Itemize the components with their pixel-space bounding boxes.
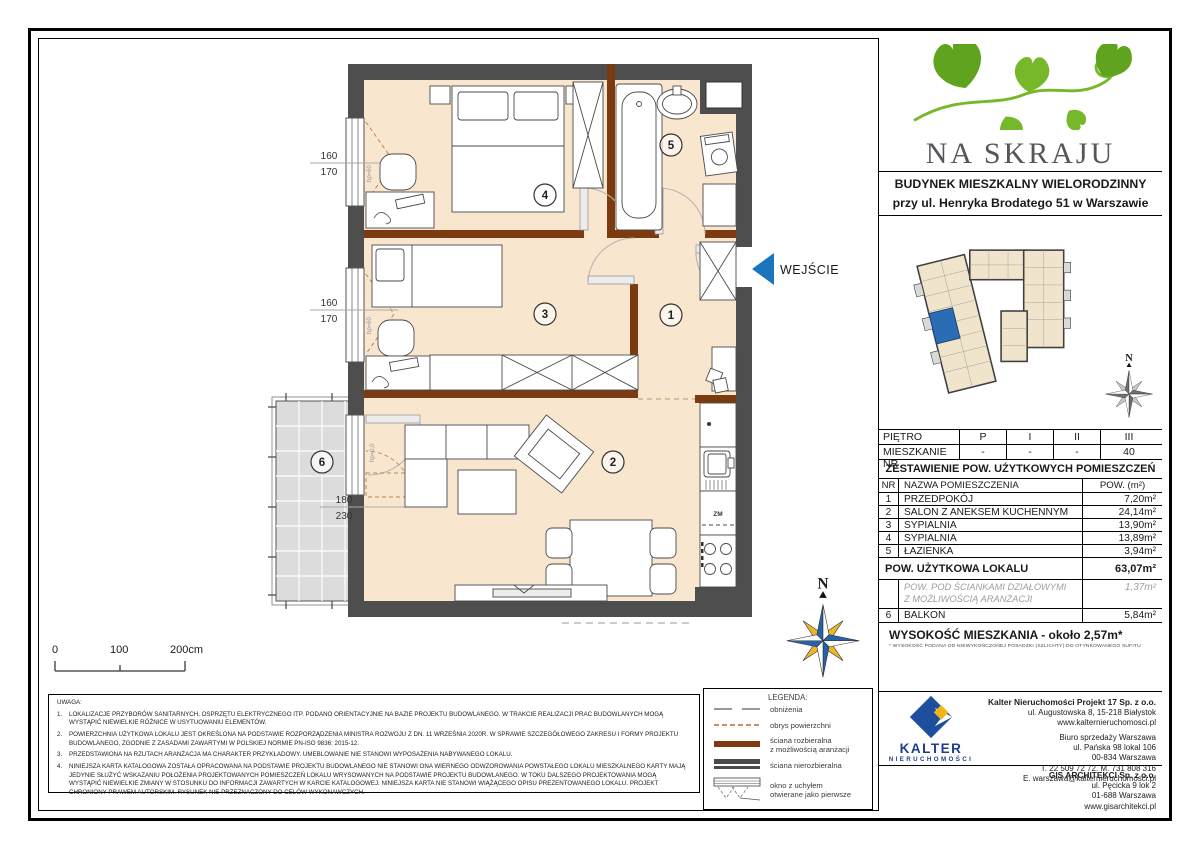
project-name: NA SKRAJU — [879, 137, 1162, 171]
dishwasher-label: ZM — [713, 511, 722, 518]
company-website: www.kalternieruchomosci.pl — [983, 718, 1156, 728]
total-value: 63,07m² — [1082, 558, 1162, 579]
row-nr — [879, 580, 899, 608]
floor-3: III — [1100, 430, 1157, 444]
sill-label: hp=60 — [367, 164, 373, 182]
room-number-5: 5 — [668, 140, 675, 152]
room-number-3: 3 — [542, 309, 548, 321]
company-address: ul. Augustowska 8, 15-218 Białystok — [983, 708, 1156, 718]
partition-label: POW. POD ŚCIANKAMI DZIAŁOWYMI Z MOŻLIWOŚ… — [899, 580, 1082, 608]
architect-city: 01-688 Warszawa — [879, 791, 1156, 801]
developer-contact: Kalter Nieruchomości Projekt 17 Sp. z o.… — [983, 692, 1162, 765]
unit-p: - — [959, 445, 1006, 459]
dim-window2-width: 160 — [321, 298, 338, 309]
legend-label: otwierane jako pierwsze — [770, 790, 851, 799]
legend-item-window: okno z uchyłem otwierane jako pierwsze — [712, 776, 868, 804]
developer-section: KALTER nieruchomości Kalter Nieruchomośc… — [879, 691, 1162, 765]
row-nr: 6 — [879, 609, 899, 622]
kalter-diamond-icon — [908, 694, 954, 740]
floor-2: II — [1053, 430, 1100, 444]
office-line: Biuro sprzedaży Warszawa — [983, 733, 1156, 743]
legend-item-fixed-wall: ściana nierozbieralna — [712, 758, 868, 772]
row-name: SALON Z ANEKSEM KUCHENNYM — [899, 506, 1082, 518]
legend-item-removable-wall: ściana rozbieralna z możliwością aranżac… — [712, 736, 868, 754]
note-item: 3.PRZEDSTAWIONA NA RZUTACH ARANŻACJA MA … — [57, 751, 689, 760]
note-text: NINIEJSZA KARTA KATALOGOWA ZOSTAŁA OPRAC… — [69, 763, 689, 798]
site-plan-section: N — [879, 216, 1162, 430]
architect-name: GIS ARCHITEKCI Sp. z o.o. — [879, 770, 1156, 781]
dim-window2-height: 170 — [321, 314, 338, 325]
legend-box: LEGENDA: obniżenia obrys powierzchni ści… — [703, 688, 873, 810]
compass-rose-small: N — [1100, 351, 1158, 431]
row-nr: 3 — [879, 519, 899, 531]
balcony-row: 6 BALKON 5,84m² — [879, 609, 1162, 623]
legend-item-outline: obrys powierzchni — [712, 720, 868, 732]
office-line: ul. Pańska 98 lokal 106 — [983, 743, 1156, 753]
scale-0: 0 — [52, 644, 58, 656]
row-area: 13,90m² — [1082, 519, 1162, 531]
row-area: 3,94m² — [1082, 545, 1162, 557]
floor-plan: hp=60 hp=60 hp=0,0 160 170 160 170 — [262, 42, 882, 632]
row-name: PRZEDPOKÓJ — [899, 493, 1082, 505]
legend-label: obniżenia — [770, 705, 803, 714]
dim-balcony-door-width: 180 — [336, 495, 353, 506]
row-nr: 4 — [879, 532, 899, 544]
room-number-2: 2 — [610, 457, 616, 469]
total-area-row: POW. UŻYTKOWA LOKALU 63,07m² — [879, 558, 1162, 580]
row-area: 24,14m² — [1082, 506, 1162, 518]
outline-symbol — [712, 720, 764, 732]
building-line1: BUDYNEK MIESZKALNY WIELORODZINNY — [879, 175, 1162, 193]
kalter-logo: KALTER nieruchomości — [879, 692, 983, 765]
company-name: Kalter Nieruchomości Projekt 17 Sp. z o.… — [983, 697, 1156, 708]
entrance-marker: WEJŚCIE — [752, 253, 839, 285]
height-footnote: * WYSOKOŚĆ PODANA OD NIEWYKOŃCZONEJ POSA… — [889, 644, 1162, 649]
kitchen-furniture: ZM — [700, 403, 736, 587]
compass-rose-main: N — [780, 574, 866, 698]
note-number: 2. — [57, 731, 69, 748]
ivy-logo-icon — [901, 44, 1141, 130]
legend-label: ściana rozbieralna — [770, 736, 832, 745]
building-line2: przy ul. Henryka Brodatego 51 w Warszawi… — [879, 194, 1162, 212]
table-row: 3 SYPIALNIA 13,90m² — [879, 519, 1162, 532]
row-name: SYPIALNIA — [899, 519, 1082, 531]
floor-p: P — [959, 430, 1006, 444]
note-number: 4. — [57, 763, 69, 798]
row-name: BALKON — [899, 609, 1082, 622]
niche — [706, 82, 742, 108]
unit-1: - — [1006, 445, 1053, 459]
architect-website: www.gisarchitekci.pl — [879, 802, 1156, 812]
note-item: 1.LOKALIZACJE PRZYBORÓW SANITARNYCH, OSP… — [57, 711, 689, 728]
col-area: POW. (m²) — [1082, 479, 1162, 492]
partition-value: 1,37m² — [1082, 580, 1162, 608]
partition-line1: POW. POD ŚCIANKAMI DZIAŁOWYMI — [904, 582, 1066, 592]
notes-title: UWAGA: — [57, 699, 689, 708]
scale-200: 200cm — [170, 644, 203, 656]
note-number: 3. — [57, 751, 69, 760]
note-text: POWIERZCHNIA UŻYTKOWA LOKALU JEST OKREŚL… — [69, 731, 689, 748]
floor-label: PIĘTRO — [879, 430, 959, 444]
partition-area-row: POW. POD ŚCIANKAMI DZIAŁOWYMI Z MOŻLIWOŚ… — [879, 580, 1162, 609]
fixed-wall-symbol — [712, 758, 764, 772]
north-label: N — [1125, 353, 1133, 364]
row-name: SYPIALNIA — [899, 532, 1082, 544]
building-description: BUDYNEK MIESZKALNY WIELORODZINNY przy ul… — [879, 172, 1162, 216]
row-area: 5,84m² — [1082, 609, 1162, 622]
architect-section: GIS ARCHITEKCI Sp. z o.o. ul. Pęcicka 9 … — [879, 765, 1162, 811]
legend-item-lowering: obniżenia — [712, 704, 868, 716]
title-block: NA SKRAJU BUDYNEK MIESZKALNY WIELORODZIN… — [878, 38, 1162, 811]
north-label: N — [817, 575, 828, 592]
table-row: 1 PRZEDPOKÓJ 7,20m² — [879, 493, 1162, 506]
row-area: 7,20m² — [1082, 493, 1162, 505]
kalter-wordmark: KALTER — [900, 741, 963, 756]
kalter-subtitle: nieruchomości — [889, 756, 973, 763]
floor-table-row: PIĘTRO P I II III — [879, 430, 1162, 445]
entrance-label: WEJŚCIE — [780, 262, 839, 277]
removable-wall-symbol — [712, 738, 764, 752]
note-number: 1. — [57, 711, 69, 728]
unit-label: MIESZKANIE NR — [879, 445, 959, 459]
legend-label: obrys powierzchni — [770, 721, 831, 730]
dim-window1-height: 170 — [321, 167, 338, 178]
legend-label: okno z uchyłem — [770, 781, 823, 790]
note-text: LOKALIZACJE PRZYBORÓW SANITARNYCH, OSPRZ… — [69, 711, 689, 728]
window-symbol — [712, 776, 764, 804]
dim-balcony-door-height: 230 — [336, 511, 353, 522]
sill-label: hp=60 — [367, 316, 373, 334]
room-number-6: 6 — [319, 457, 325, 469]
legend-label: z możliwością aranżacji — [770, 745, 849, 754]
scale-bar: 0 100 200cm — [52, 644, 222, 678]
office-line: 00-834 Warszawa — [983, 753, 1156, 763]
dim-window1-width: 160 — [321, 151, 338, 162]
building-locator-plan — [895, 218, 1095, 404]
lowering-symbol — [712, 704, 764, 716]
unit-table-row: MIESZKANIE NR - - - 40 — [879, 445, 1162, 460]
row-name: ŁAZIENKA — [899, 545, 1082, 557]
architect-address: ul. Pęcicka 9 lok 2 — [879, 781, 1156, 791]
entry-opening — [736, 247, 752, 287]
unit-2: - — [1053, 445, 1100, 459]
room-number-4: 4 — [542, 190, 549, 202]
scale-100: 100 — [110, 644, 128, 656]
table-row: 2 SALON Z ANEKSEM KUCHENNYM 24,14m² — [879, 506, 1162, 519]
row-nr: 2 — [879, 506, 899, 518]
apartment-card-page: hp=60 hp=60 hp=0,0 160 170 160 170 — [0, 0, 1200, 849]
spacer — [879, 664, 1162, 691]
brand-section: NA SKRAJU — [879, 38, 1162, 172]
table-row: 5 ŁAZIENKA 3,94m² — [879, 545, 1162, 558]
room-number-1: 1 — [668, 310, 675, 322]
entrance-arrow-icon — [752, 253, 774, 285]
unit-3: 40 — [1100, 445, 1157, 459]
note-item: 2.POWIERZCHNIA UŻYTKOWA LOKALU JEST OKRE… — [57, 731, 689, 748]
col-nr: NR — [879, 479, 899, 492]
floor-1: I — [1006, 430, 1053, 444]
total-label: POW. UŻYTKOWA LOKALU — [879, 563, 1082, 575]
rooms-table-header: NR NAZWA POMIESZCZENIA POW. (m²) — [879, 479, 1162, 493]
notes-box: UWAGA: 1.LOKALIZACJE PRZYBORÓW SANITARNY… — [48, 694, 700, 793]
col-name: NAZWA POMIESZCZENIA — [899, 479, 1082, 492]
height-section: WYSOKOŚĆ MIESZKANIA - około 2,57m* * WYS… — [879, 623, 1162, 664]
scale-bar-line — [52, 659, 202, 673]
note-text: PRZEDSTAWIONA NA RZUTACH ARANŻACJA MA CH… — [69, 751, 512, 760]
row-area: 13,89m² — [1082, 532, 1162, 544]
height-label: WYSOKOŚĆ MIESZKANIA - około 2,57m* — [889, 628, 1162, 642]
legend-label: ściana nierozbieralna — [770, 761, 842, 770]
partition-line2: Z MOŻLIWOŚCIĄ ARANŻACJI — [904, 594, 1032, 604]
note-item: 4.NINIEJSZA KARTA KATALOGOWA ZOSTAŁA OPR… — [57, 763, 689, 798]
rooms-table-title: ZESTAWIENIE POW. UŻYTKOWYCH POMIESZCZEŃ — [879, 460, 1162, 479]
row-nr: 1 — [879, 493, 899, 505]
row-nr: 5 — [879, 545, 899, 557]
sill-label: hp=0,0 — [370, 443, 376, 462]
table-row: 4 SYPIALNIA 13,89m² — [879, 532, 1162, 545]
